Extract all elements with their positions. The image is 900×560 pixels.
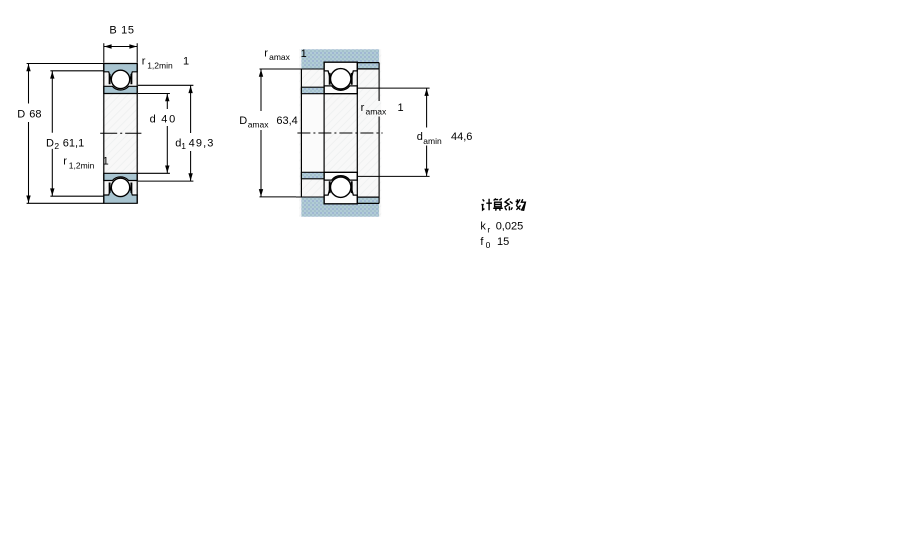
svg-text:d: d bbox=[417, 131, 423, 143]
svg-text:2: 2 bbox=[54, 141, 59, 151]
svg-text:0,025: 0,025 bbox=[496, 220, 524, 232]
svg-text:40: 40 bbox=[161, 113, 175, 125]
svg-text:r: r bbox=[142, 56, 146, 68]
svg-text:D: D bbox=[46, 137, 54, 149]
svg-text:1,2min: 1,2min bbox=[69, 161, 95, 171]
svg-text:1: 1 bbox=[183, 56, 189, 68]
svg-text:k: k bbox=[480, 220, 486, 232]
svg-text:15: 15 bbox=[497, 236, 509, 248]
svg-text:68: 68 bbox=[29, 108, 41, 120]
svg-text:0: 0 bbox=[486, 240, 491, 250]
svg-text:1,2min: 1,2min bbox=[147, 61, 173, 71]
svg-text:r: r bbox=[361, 102, 365, 114]
svg-text:r: r bbox=[63, 156, 67, 168]
svg-text:d: d bbox=[150, 113, 156, 125]
svg-text:D: D bbox=[17, 108, 25, 120]
svg-text:49,3: 49,3 bbox=[189, 137, 214, 149]
svg-text:amax: amax bbox=[269, 52, 291, 62]
svg-text:r: r bbox=[264, 48, 268, 60]
svg-text:f: f bbox=[480, 236, 484, 248]
svg-text:44,6: 44,6 bbox=[451, 131, 472, 143]
svg-text:1: 1 bbox=[301, 48, 307, 60]
svg-text:1: 1 bbox=[398, 102, 404, 114]
svg-text:amax: amax bbox=[248, 119, 270, 129]
svg-text:1: 1 bbox=[103, 156, 109, 168]
svg-text:63,4: 63,4 bbox=[276, 115, 297, 127]
svg-text:B 15: B 15 bbox=[109, 25, 134, 37]
svg-text:D: D bbox=[239, 115, 247, 127]
svg-text:r: r bbox=[487, 225, 490, 235]
svg-text:amin: amin bbox=[423, 136, 442, 146]
svg-text:61,1: 61,1 bbox=[63, 137, 84, 149]
svg-text:amax: amax bbox=[366, 106, 388, 116]
svg-text:1: 1 bbox=[181, 141, 186, 151]
